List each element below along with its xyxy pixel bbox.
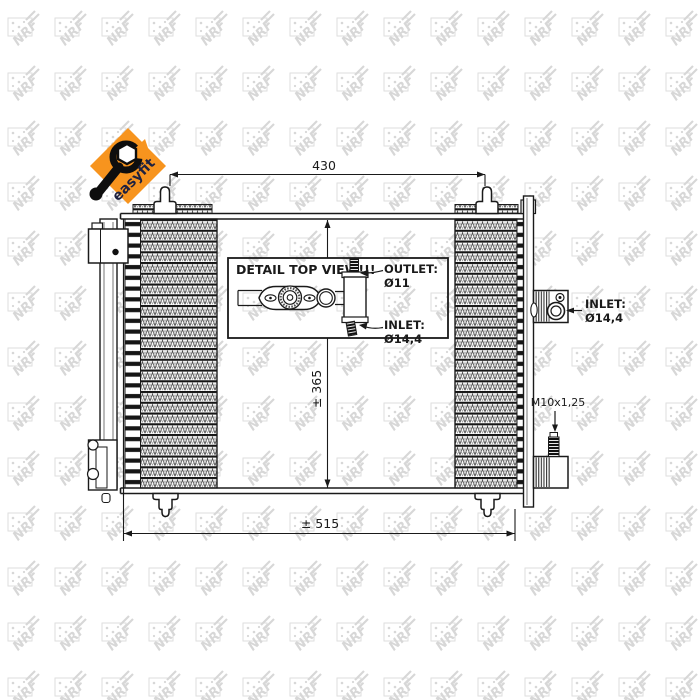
- dim-515-label: ± 515: [301, 516, 339, 531]
- inlet-block-boss: [531, 303, 537, 317]
- detail-outlet-label: OUTLET:: [384, 262, 438, 276]
- inlet-label: INLET:: [585, 297, 626, 311]
- fin-section-left: [141, 219, 218, 488]
- sight-glass-bottom: [88, 469, 99, 480]
- drain-stub: [102, 494, 110, 503]
- threaded-stud: [549, 437, 560, 457]
- sight-glass-top: [88, 440, 98, 450]
- wrench-head: [90, 188, 103, 201]
- catalog-product-image: NRF easyfit: [0, 0, 700, 700]
- stud-cap: [550, 433, 558, 438]
- drier-bracket-tab: [92, 223, 103, 229]
- hex-nut-icon: [118, 144, 136, 164]
- detail-inlet-size: Ø14,4: [384, 332, 422, 346]
- channel-body: [524, 196, 534, 507]
- detail-inlet-stud: [346, 321, 357, 336]
- bracket-bolt: [112, 249, 118, 255]
- dim-365-label: ± 365: [309, 370, 324, 408]
- inlet-connection-block: [531, 291, 568, 323]
- drier-bracket: [89, 229, 129, 263]
- dim-430-label: 430: [312, 158, 336, 173]
- detail-outlet-size: Ø11: [384, 276, 410, 290]
- inlet-size: Ø14,4: [585, 311, 623, 325]
- fin-section-right: [455, 219, 517, 488]
- detail-outlet-stud: [350, 259, 359, 273]
- technical-drawing: NRF easyfit: [0, 0, 700, 700]
- detail-inlet-label: INLET:: [384, 318, 425, 332]
- tube-ends-right: [517, 219, 524, 488]
- detail-fitting-body: [344, 277, 366, 318]
- service-port-label: M10x1,25: [531, 396, 586, 409]
